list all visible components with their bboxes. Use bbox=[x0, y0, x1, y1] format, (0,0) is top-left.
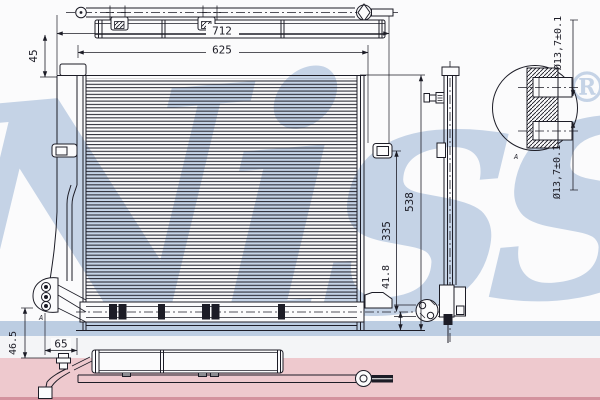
dim-label-712: 712 bbox=[212, 25, 232, 38]
top-bracket-left bbox=[111, 17, 128, 30]
right-bracket bbox=[373, 144, 392, 159]
dim-label-port-top: Ø13,7±0.1 bbox=[552, 16, 564, 70]
band-white bbox=[0, 336, 600, 358]
core-fins bbox=[86, 78, 357, 299]
condenser-drawing: Nissens ® bbox=[0, 0, 600, 400]
brand-bands bbox=[0, 321, 600, 400]
technical-drawing-page: Nissens ® bbox=[0, 0, 600, 400]
top-core-bar bbox=[95, 20, 385, 38]
side-bracket-profile bbox=[437, 143, 446, 158]
dim-label-46-5: 46.5 bbox=[8, 331, 19, 355]
left-bracket bbox=[52, 144, 77, 157]
band-pink bbox=[0, 358, 600, 397]
dim-label-41-8: 41.8 bbox=[381, 265, 392, 289]
top-left-tab bbox=[60, 64, 86, 76]
condenser-core bbox=[83, 76, 364, 330]
dim-label-538: 538 bbox=[403, 192, 416, 212]
dim-label-45: 45 bbox=[27, 49, 40, 62]
side-top-cap bbox=[442, 67, 459, 76]
dim-label-port-bottom: Ø13,7±0.1 bbox=[551, 145, 563, 199]
dim-label-625: 625 bbox=[212, 44, 232, 57]
receiver-drier bbox=[92, 350, 283, 377]
dim-label-65: 65 bbox=[54, 338, 67, 351]
section-label-a: A bbox=[38, 314, 43, 322]
detail-label-a: A bbox=[513, 153, 518, 161]
band-blue bbox=[0, 321, 600, 336]
dim-label-335: 335 bbox=[380, 221, 393, 241]
